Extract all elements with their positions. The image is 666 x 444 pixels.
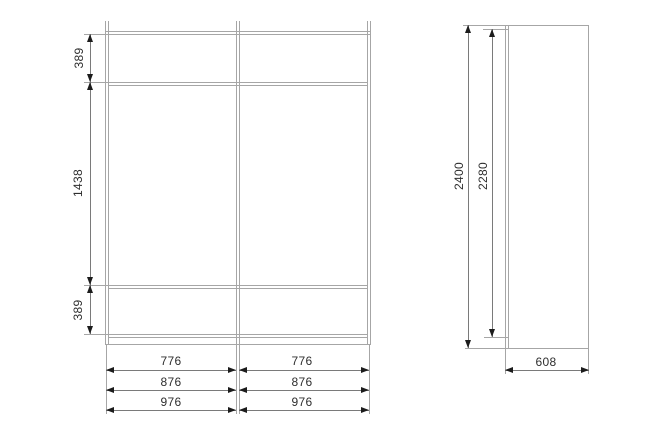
arrow-right-icon (361, 387, 369, 393)
dim-label-opening-width-left: 776 (161, 354, 182, 368)
dimension-drawing-canvas: 389 1438 389 776 776 876 876 (0, 0, 666, 444)
arrow-up-icon (87, 34, 93, 42)
arrow-down-icon (465, 340, 471, 348)
arrow-down-icon (87, 277, 93, 285)
front-left-panel-inner-line (108, 21, 109, 345)
side-top-edge-line (463, 25, 589, 26)
front-base-top-line-a (108, 334, 367, 335)
arrow-down-icon (87, 74, 93, 82)
arrow-left-icon (505, 367, 513, 373)
width-dim-line-row3-left (106, 410, 236, 411)
front-upper-shelf-line-b (108, 85, 367, 86)
arrow-down-icon (87, 326, 93, 334)
dim-label-interior-height: 2280 (476, 162, 490, 190)
front-lower-shelf-line-a (108, 285, 367, 286)
side-interior-top-tick (483, 29, 508, 30)
ext-line-middle-a (236, 345, 237, 414)
dim-label-middle-section-height: 1438 (71, 169, 85, 197)
dim-label-opening-width-right: 776 (292, 354, 313, 368)
arrow-left-icon (106, 407, 114, 413)
front-left-panel-outer-line (105, 21, 106, 345)
front-right-panel-inner-line (367, 21, 368, 345)
arrow-right-icon (361, 367, 369, 373)
arrow-left-icon (239, 387, 247, 393)
arrow-up-icon (489, 29, 495, 37)
side-back-edge-line (588, 25, 589, 348)
width-dim-line-row1-left (106, 370, 236, 371)
dim-label-bottom-section-height: 389 (71, 300, 85, 321)
width-dim-line-row3-right (239, 410, 369, 411)
front-middle-divider-left-line (236, 21, 237, 345)
arrow-left-icon (239, 407, 247, 413)
depth-dim-line (505, 370, 589, 371)
dim-label-top-section-height: 389 (72, 48, 86, 69)
front-top-rail-lower-line (105, 34, 371, 35)
ext-line-middle-b (239, 345, 240, 414)
arrow-right-icon (581, 367, 589, 373)
side-front-edge-line-b (508, 25, 509, 348)
side-bottom-edge-line (465, 348, 589, 349)
arrow-right-icon (228, 367, 236, 373)
dim-label-door-width-right: 876 (292, 375, 313, 389)
arrow-right-icon (228, 407, 236, 413)
side-front-edge-line-a (505, 25, 506, 348)
width-dim-line-row2-left (106, 390, 236, 391)
arrow-down-icon (489, 329, 495, 337)
arrow-left-icon (106, 367, 114, 373)
front-bottom-edge-line (105, 344, 371, 345)
ext-tick-base (84, 334, 108, 335)
dim-label-door-width-left: 876 (161, 375, 182, 389)
interior-height-dim-line (492, 29, 493, 337)
ext-line-right (369, 345, 370, 414)
ext-line-left (106, 345, 107, 414)
front-base-top-line-b (108, 337, 367, 338)
arrow-right-icon (228, 387, 236, 393)
dim-label-section-width-right: 976 (292, 395, 313, 409)
front-lower-shelf-line-b (108, 288, 367, 289)
front-top-rail-upper-line (105, 31, 371, 32)
dim-label-depth: 608 (536, 355, 557, 369)
side-interior-bottom-tick (484, 337, 508, 338)
width-dim-line-row2-right (239, 390, 369, 391)
front-middle-divider-right-line (239, 21, 240, 345)
front-upper-shelf-line-a (108, 82, 367, 83)
arrow-up-icon (87, 285, 93, 293)
arrow-left-icon (239, 367, 247, 373)
arrow-right-icon (361, 407, 369, 413)
arrow-left-icon (106, 387, 114, 393)
width-dim-line-row1-right (239, 370, 369, 371)
dim-label-section-width-left: 976 (161, 395, 182, 409)
front-right-panel-outer-line (370, 21, 371, 345)
overall-height-dim-line (468, 25, 469, 348)
arrow-up-icon (465, 25, 471, 33)
dim-label-overall-height: 2400 (452, 162, 466, 190)
arrow-up-icon (87, 82, 93, 90)
